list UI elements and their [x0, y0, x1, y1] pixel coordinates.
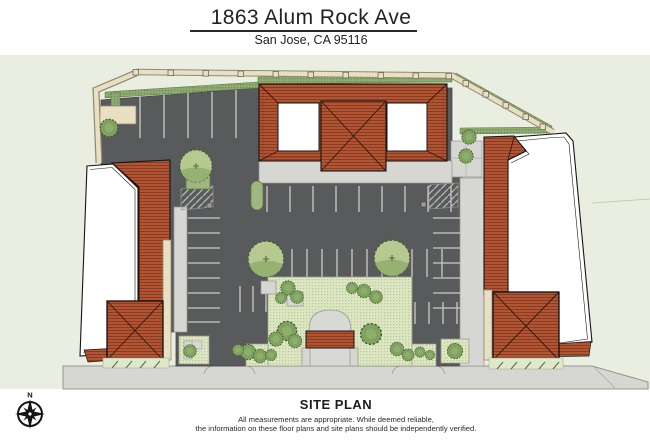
entry-post — [302, 348, 310, 366]
southeast-pavilion — [489, 292, 563, 369]
no-parking-hatch-east — [429, 183, 458, 209]
disclaimer-line-2: the information on these floor plans and… — [196, 424, 477, 433]
site-plan-page: N 1863 Alum Rock Ave San Jose, CA 95116 … — [0, 0, 650, 443]
north-building — [259, 84, 447, 171]
bush-icon — [459, 149, 473, 163]
tree-icon — [180, 150, 212, 182]
garden-wall — [163, 240, 171, 360]
light-pole-icon — [207, 203, 212, 208]
title-underline — [190, 30, 417, 32]
page-title: 1863 Alum Rock Ave — [211, 6, 412, 30]
entry-trellis — [306, 331, 354, 348]
compass-rose-icon: N — [15, 391, 45, 430]
walk-east — [460, 178, 484, 366]
pad — [261, 281, 276, 294]
landscape-island — [251, 181, 263, 210]
light-pole-icon — [421, 202, 426, 207]
north-building-court-west — [278, 103, 319, 151]
walk-west — [174, 207, 187, 332]
page-subtitle: San Jose, CA 95116 — [254, 33, 367, 47]
bush-icon — [100, 119, 118, 137]
tree-icon — [374, 240, 410, 276]
compass-north-label: N — [27, 391, 32, 400]
southwest-pavilion — [103, 301, 169, 368]
street-sidewalk — [63, 366, 648, 389]
tree-icon — [248, 241, 284, 277]
bush-icon — [462, 130, 476, 144]
plan-label: SITE PLAN — [300, 397, 372, 412]
site-plan-drawing: N — [0, 0, 650, 443]
north-building-court-east — [387, 103, 427, 151]
garden-wall — [484, 290, 492, 360]
entry-post — [350, 348, 358, 366]
disclaimer-line-1: All measurements are appropriate. While … — [238, 415, 434, 424]
